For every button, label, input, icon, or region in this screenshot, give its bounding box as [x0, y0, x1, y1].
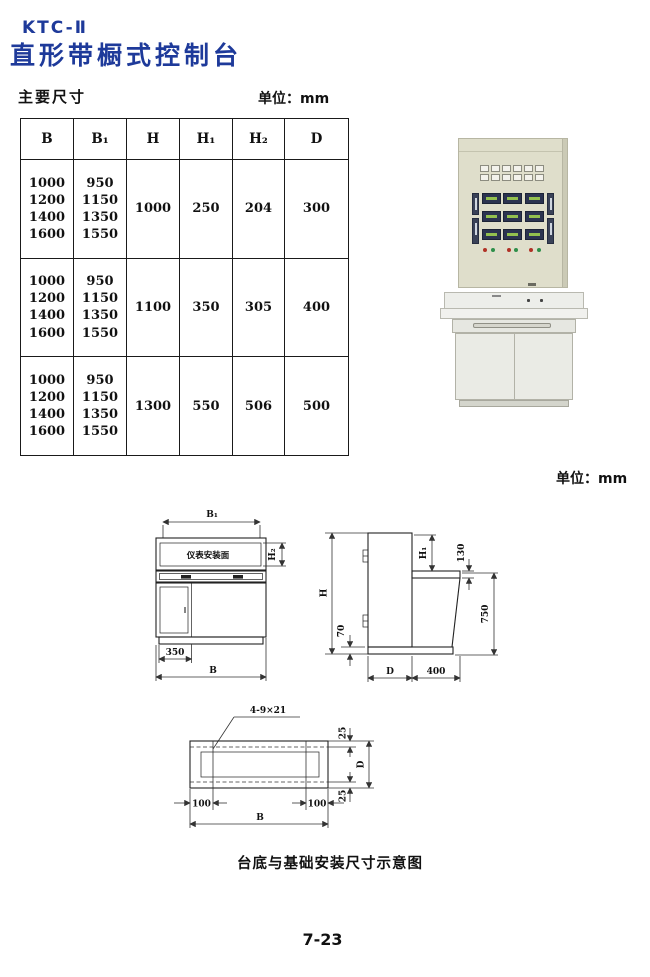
dim-label-d: D — [386, 667, 394, 677]
cell-h1: 350 — [180, 258, 233, 357]
panel-frame-line — [459, 151, 562, 152]
panel-face-label: 仪表安装面 — [186, 550, 230, 561]
table-header-row: B B₁ H H₁ H₂ D — [21, 119, 349, 160]
switch — [513, 174, 522, 181]
desk-button — [540, 299, 543, 302]
dim-label-h1: H₁ — [419, 547, 429, 560]
dim-label-25-top: 25 — [339, 727, 349, 740]
cell-h: 1000 — [127, 160, 180, 259]
dimension-table: B B₁ H H₁ H₂ D 1000 1200 1400 1600 950 1… — [20, 118, 349, 456]
dim-label-350: 350 — [166, 648, 185, 658]
dim-label-750: 750 — [481, 605, 491, 624]
switch — [502, 165, 511, 172]
cell-h: 1100 — [127, 258, 180, 357]
model-code: KTC-Ⅱ — [22, 18, 88, 38]
desk-button — [527, 299, 530, 302]
cabinet-base — [459, 400, 569, 407]
cell-d: 300 — [285, 160, 349, 259]
switch — [535, 165, 544, 172]
dim-label-130: 130 — [457, 544, 467, 563]
product-photo-console — [428, 123, 644, 417]
cell-b1: 950 1150 1350 1550 — [74, 160, 127, 259]
instrument-display — [525, 229, 544, 240]
table-row: 1000 1200 1400 1600 950 1150 1350 1550 1… — [21, 258, 349, 357]
desk-top — [444, 292, 584, 309]
cell-b1: 950 1150 1350 1550 — [74, 357, 127, 456]
dim-label-b: B — [209, 666, 217, 676]
red-indicator-lamp — [507, 248, 511, 252]
cell-b: 1000 1200 1400 1600 — [21, 357, 74, 456]
col-header-h1: H₁ — [180, 119, 233, 160]
col-header-h2: H₂ — [233, 119, 285, 160]
slot-spec-label: 4-9×21 — [250, 706, 286, 716]
side-view-drawing: H H₁ 130 750 70 D 400 — [315, 498, 510, 690]
col-header-b1: B₁ — [74, 119, 127, 160]
drawer-handle-mark — [233, 575, 243, 579]
switch — [480, 165, 489, 172]
dim-label-h2: H₂ — [268, 548, 278, 561]
dim-label-d: D — [357, 760, 367, 768]
base-plan-drawing: 4-9×21 100 100 B 25 25 D — [148, 695, 383, 840]
instrument-display — [525, 211, 544, 222]
red-indicator-lamp — [529, 248, 533, 252]
instrument-display — [503, 211, 522, 222]
unit-label-top: 单位：mm — [258, 88, 329, 108]
name-plate — [528, 283, 536, 286]
instrument-display — [482, 193, 501, 204]
drawer-handle — [473, 323, 551, 328]
cell-h2: 204 — [233, 160, 285, 259]
green-indicator-lamp — [491, 248, 495, 252]
switch — [480, 174, 489, 181]
cabinet-door-divider — [514, 333, 515, 400]
vertical-meter — [472, 193, 479, 215]
col-header-h: H — [127, 119, 180, 160]
dim-label-400: 400 — [427, 667, 446, 677]
green-indicator-lamp — [514, 248, 518, 252]
vertical-meter — [472, 218, 479, 244]
cell-d: 500 — [285, 357, 349, 456]
cell-h1: 550 — [180, 357, 233, 456]
dim-label-h: H — [320, 588, 330, 597]
switch — [513, 165, 522, 172]
cell-d: 400 — [285, 258, 349, 357]
dim-label-b1: B₁ — [206, 510, 218, 520]
table-row: 1000 1200 1400 1600 950 1150 1350 1550 1… — [21, 160, 349, 259]
cell-b: 1000 1200 1400 1600 — [21, 258, 74, 357]
cell-h1: 250 — [180, 160, 233, 259]
drawer-handle-mark — [181, 575, 191, 579]
dim-label-25-bottom: 25 — [339, 790, 349, 803]
table-row: 1000 1200 1400 1600 950 1150 1350 1550 1… — [21, 357, 349, 456]
switch — [502, 174, 511, 181]
col-header-d: D — [285, 119, 349, 160]
switch — [491, 174, 500, 181]
page-number: 7-23 — [280, 930, 365, 949]
desk-slot — [492, 295, 501, 297]
dim-label-70: 70 — [337, 625, 347, 638]
vertical-meter — [547, 193, 554, 215]
instrument-display — [525, 193, 544, 204]
desk-front-edge — [440, 308, 588, 319]
vertical-meter — [547, 218, 554, 244]
dim-label-b: B — [256, 813, 264, 823]
drawing-caption: 台底与基础安装尺寸示意图 — [165, 852, 495, 873]
switch — [524, 165, 533, 172]
switch — [535, 174, 544, 181]
section-label-main-dimensions: 主要尺寸 — [18, 86, 86, 107]
console-panel-side — [563, 138, 568, 288]
cell-b1: 950 1150 1350 1550 — [74, 258, 127, 357]
dim-label-100-left: 100 — [192, 800, 211, 810]
red-indicator-lamp — [483, 248, 487, 252]
cell-h: 1300 — [127, 357, 180, 456]
catalog-page: KTC-Ⅱ 直形带橱式控制台 主要尺寸 单位：mm B B₁ H H₁ H₂ D… — [0, 0, 650, 977]
page-title: 直形带橱式控制台 — [10, 36, 242, 72]
switch — [524, 174, 533, 181]
green-indicator-lamp — [537, 248, 541, 252]
col-header-b: B — [21, 119, 74, 160]
instrument-display — [503, 193, 522, 204]
switch — [491, 165, 500, 172]
unit-label-drawings: 单位：mm — [556, 468, 627, 488]
cell-h2: 305 — [233, 258, 285, 357]
instrument-display — [503, 229, 522, 240]
instrument-display — [482, 229, 501, 240]
dim-label-100-right: 100 — [308, 800, 327, 810]
instrument-display — [482, 211, 501, 222]
cell-h2: 506 — [233, 357, 285, 456]
cell-b: 1000 1200 1400 1600 — [21, 160, 74, 259]
front-view-drawing: B₁ 仪表安装面 H₂ 350 B — [146, 498, 298, 686]
